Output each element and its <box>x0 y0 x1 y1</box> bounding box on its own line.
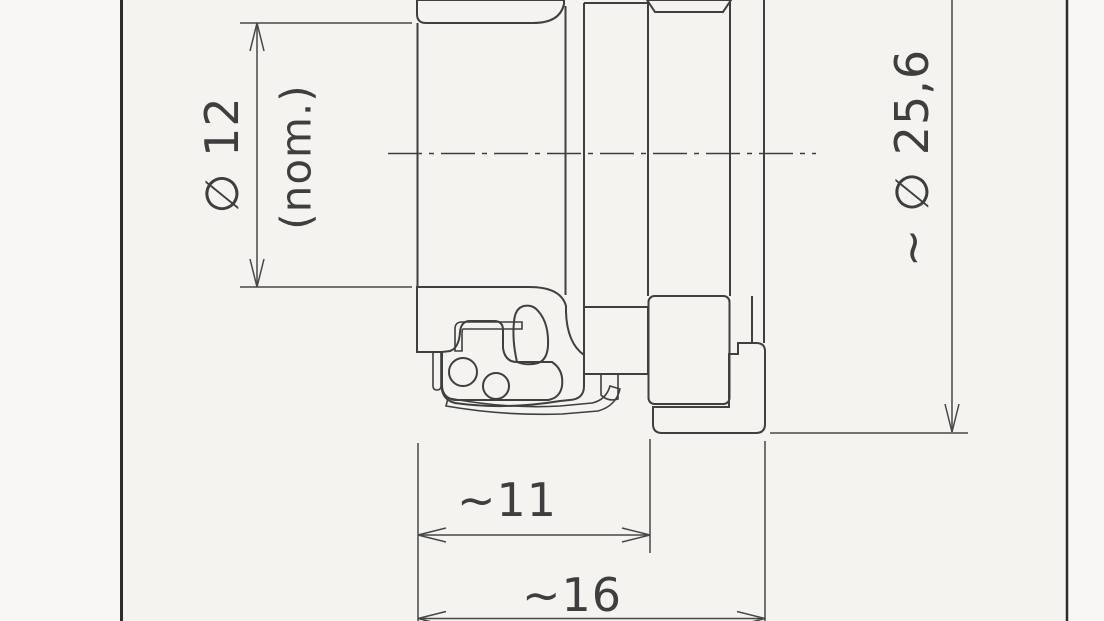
drawing-sheet: ∅ 12 (nom.) ~ ∅ 25,6 ~11 ~16 <box>0 0 1104 621</box>
paper-margin-right <box>1068 0 1104 621</box>
dim-outer-diameter-label: ~ ∅ 25,6 <box>885 49 939 267</box>
dim-bore-qualifier: (nom.) <box>272 84 321 229</box>
technical-drawing: ∅ 12 (nom.) ~ ∅ 25,6 ~11 ~16 <box>0 0 1104 621</box>
paper-margin-left <box>0 0 121 621</box>
dim-bore-label: ∅ 12 <box>195 96 249 213</box>
dim-length-front-label: ~11 <box>457 473 557 527</box>
dim-overall-length-label: ~16 <box>522 568 622 621</box>
